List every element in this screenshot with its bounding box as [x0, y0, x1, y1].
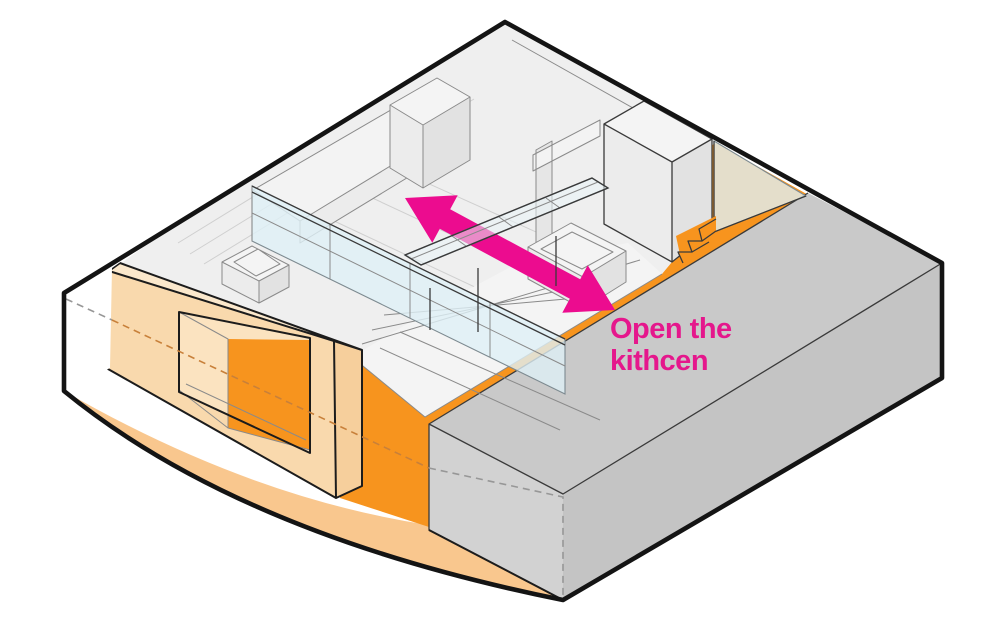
axonometric-diagram: Open the kithcen [0, 0, 1000, 630]
peach-wall-end-face [334, 341, 362, 498]
annotation-line1: Open the [610, 313, 732, 345]
annotation-line2: kithcen [610, 345, 708, 377]
diagram-stage: Open the kithcen [0, 0, 1000, 630]
